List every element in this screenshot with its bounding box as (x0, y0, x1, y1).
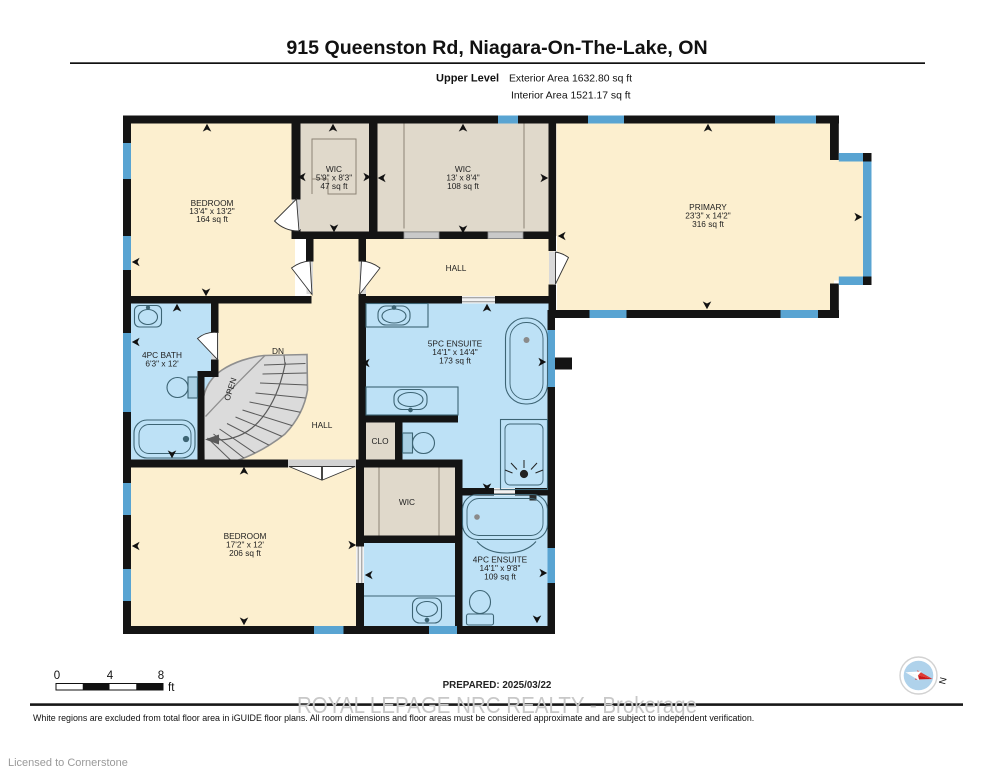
svg-text:173 sq ft: 173 sq ft (439, 356, 472, 366)
svg-text:WIC: WIC (399, 497, 415, 507)
svg-text:DN: DN (272, 346, 284, 356)
svg-text:316 sq ft: 316 sq ft (692, 219, 725, 229)
svg-text:8: 8 (158, 670, 164, 682)
svg-text:0: 0 (54, 670, 60, 682)
svg-text:HALL: HALL (446, 263, 467, 273)
svg-text:915 Queenston Rd, Niagara-On-T: 915 Queenston Rd, Niagara-On-The-Lake, O… (286, 37, 707, 59)
svg-text:CLO: CLO (371, 436, 389, 446)
svg-text:47 sq ft: 47 sq ft (320, 181, 348, 191)
svg-text:ft: ft (168, 682, 175, 694)
svg-text:Upper Level: Upper Level (436, 73, 499, 85)
svg-text:Exterior Area 1632.80 sq ft: Exterior Area 1632.80 sq ft (509, 74, 632, 85)
svg-text:4: 4 (107, 670, 114, 682)
svg-text:HALL: HALL (312, 420, 333, 430)
svg-text:108 sq ft: 108 sq ft (447, 181, 480, 191)
svg-text:164 sq ft: 164 sq ft (196, 214, 229, 224)
svg-text:PREPARED: 2025/03/22: PREPARED: 2025/03/22 (443, 680, 552, 691)
svg-text:6'3" x 12': 6'3" x 12' (145, 359, 179, 369)
svg-text:White regions are excluded fro: White regions are excluded from total fl… (33, 713, 754, 723)
svg-text:Licensed to Cornerstone: Licensed to Cornerstone (8, 757, 128, 768)
svg-text:109 sq ft: 109 sq ft (484, 572, 517, 582)
svg-text:206 sq ft: 206 sq ft (229, 548, 262, 558)
svg-text:Interior Area 1521.17 sq ft: Interior Area 1521.17 sq ft (511, 91, 631, 102)
